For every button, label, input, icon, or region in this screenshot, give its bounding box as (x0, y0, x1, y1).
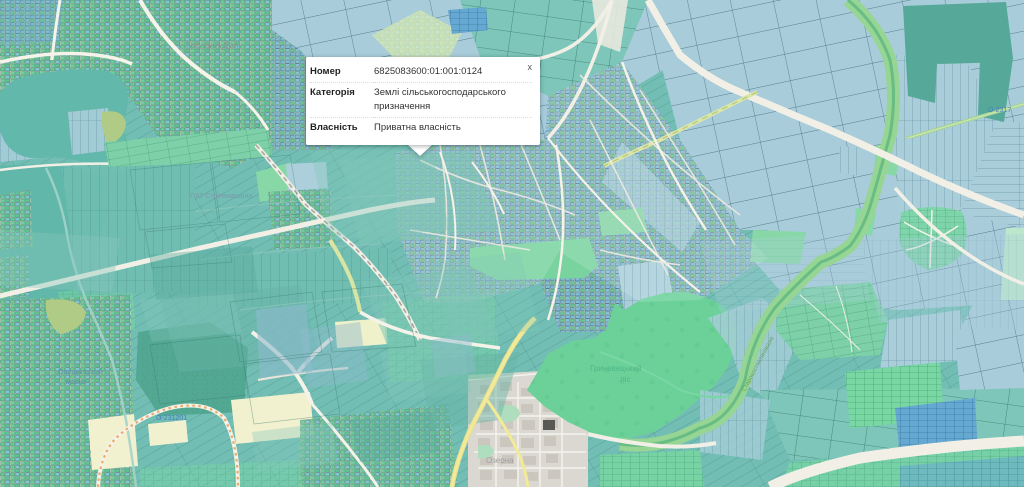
svg-text:ПАТ Строммашина: ПАТ Строммашина (190, 193, 252, 200)
svg-text:Озерна: Озерна (486, 456, 514, 465)
svg-text:ліс: ліс (620, 375, 630, 384)
svg-text:О-2317: О-2317 (988, 107, 1011, 114)
svg-text:масив: масив (66, 379, 86, 386)
svg-text:О-231201: О-231201 (156, 415, 187, 422)
svg-text:Гречани Долі: Гречани Долі (186, 40, 241, 50)
svg-text:Олешинський: Олешинський (58, 368, 103, 376)
svg-text:Гриневецький: Гриневецький (590, 364, 641, 373)
